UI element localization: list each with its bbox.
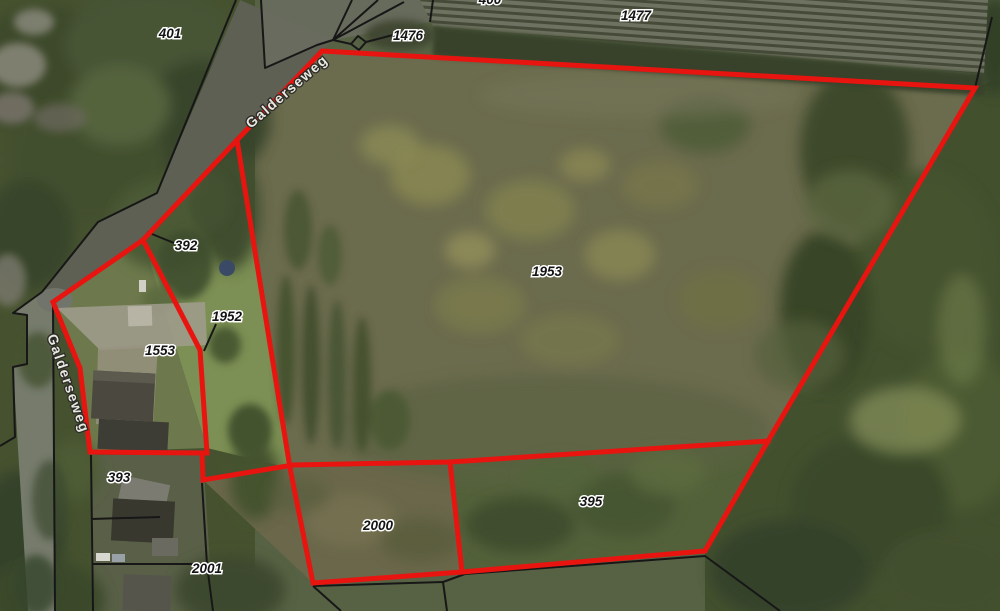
parcel-label-1953: 1953 [532, 264, 563, 279]
parcel-label-2001: 2001 [191, 561, 222, 576]
parcel-label-395: 395 [580, 494, 603, 509]
parcel-label-393: 393 [108, 470, 131, 485]
car [139, 280, 146, 292]
shed-roof [128, 306, 153, 327]
parcel-label-1952: 1952 [212, 309, 243, 324]
parcel-label-1476: 1476 [393, 28, 424, 43]
parcel-label-1553: 1553 [145, 343, 176, 358]
house-2001 [122, 574, 171, 611]
parcel-label-401: 401 [158, 26, 182, 41]
trampoline [219, 260, 235, 276]
parcel-label-392: 392 [175, 238, 198, 253]
parcel-label-400-partial: 400 [478, 0, 502, 7]
aerial-map-view[interactable]: Galderseweg Galderseweg 401 400 1476 147… [0, 0, 1000, 611]
parcel-label-2000: 2000 [362, 518, 394, 533]
parcel-label-1477: 1477 [621, 8, 653, 23]
map-canvas: Galderseweg Galderseweg 401 400 1476 147… [0, 0, 1000, 611]
